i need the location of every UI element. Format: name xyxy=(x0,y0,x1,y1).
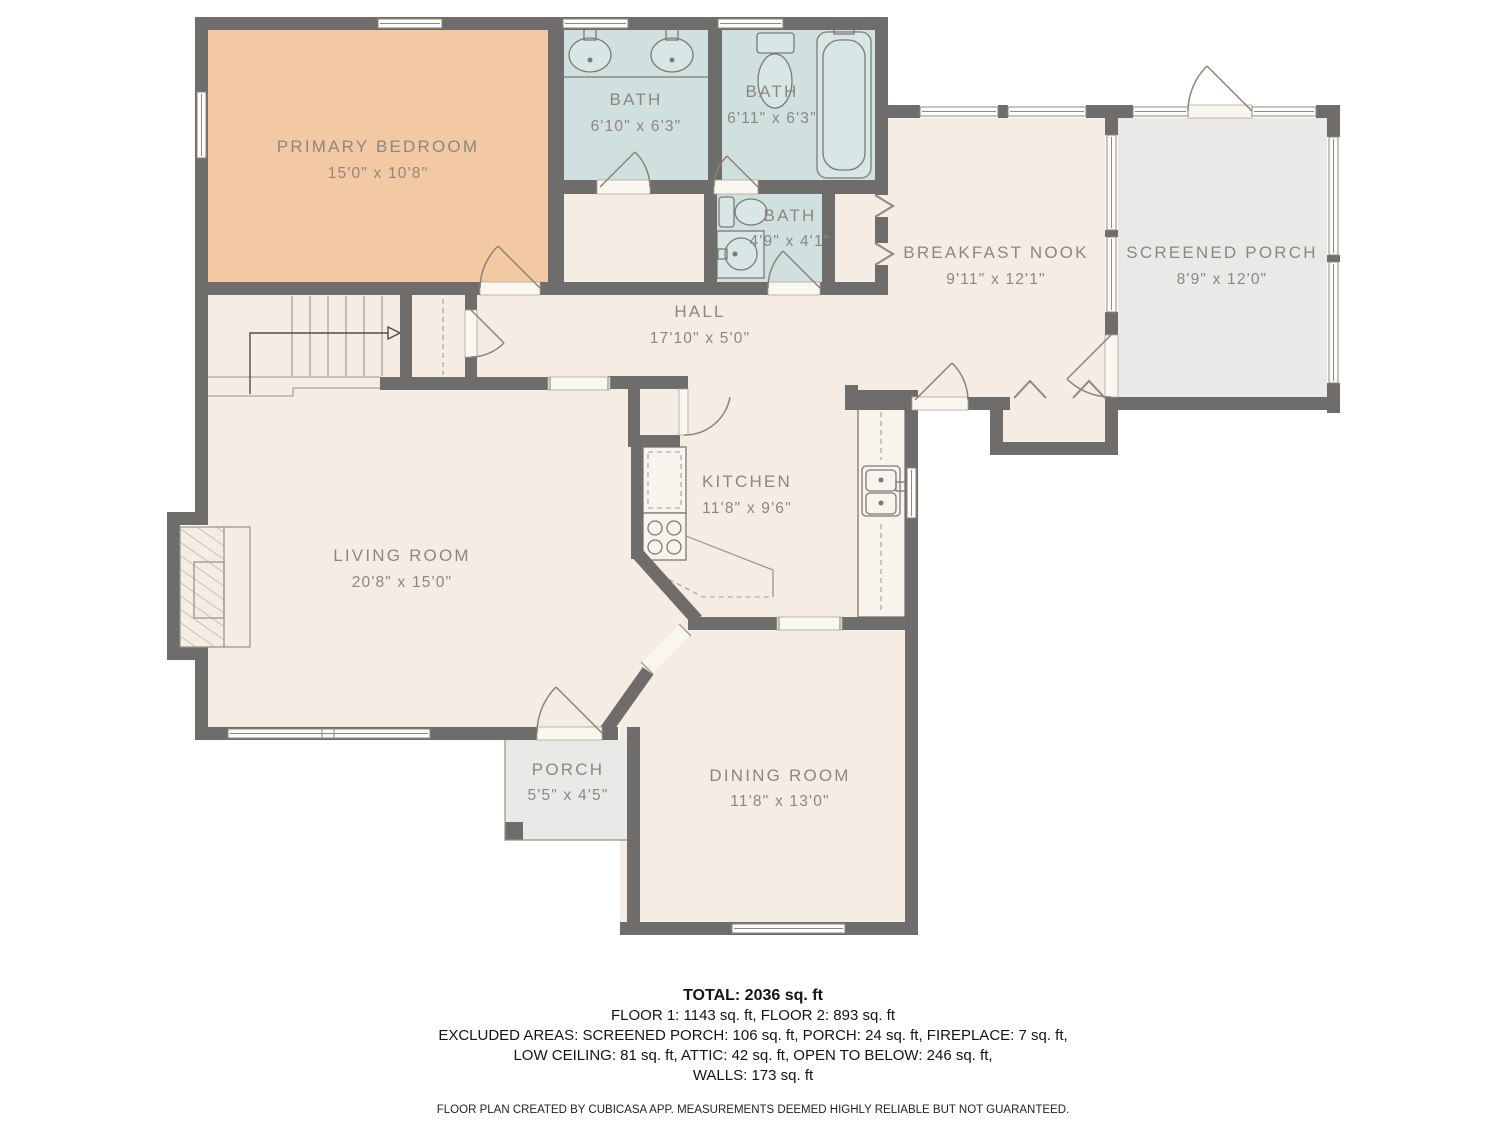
label-bath-2: BATH xyxy=(746,82,799,101)
room-alcove xyxy=(1003,397,1105,442)
window xyxy=(563,19,628,28)
dims-bath-3: 4'9" x 4'1" xyxy=(750,233,831,250)
label-bath-1: BATH xyxy=(610,90,663,109)
window xyxy=(1008,107,1086,116)
label-primary-bedroom: PRIMARY BEDROOM xyxy=(277,137,479,156)
window xyxy=(1107,237,1116,312)
dims-porch: 5'5" x 4'5" xyxy=(528,787,609,804)
summary-total: TOTAL: 2036 sq. ft xyxy=(683,987,824,1004)
summary-excluded-2: LOW CEILING: 81 sq. ft, ATTIC: 42 sq. ft… xyxy=(513,1047,992,1064)
window xyxy=(378,19,442,28)
window xyxy=(197,92,206,158)
summary-floors: FLOOR 1: 1143 sq. ft, FLOOR 2: 893 sq. f… xyxy=(611,1007,896,1024)
label-living-room: LIVING ROOM xyxy=(333,546,471,565)
window xyxy=(732,924,845,933)
cased-opening-hall-living xyxy=(548,377,610,390)
summary-excluded-1: EXCLUDED AREAS: SCREENED PORCH: 106 sq. … xyxy=(438,1027,1067,1044)
dims-living-room: 20'8" x 15'0" xyxy=(352,574,453,591)
room-primary-bedroom xyxy=(208,30,548,282)
kitchen-counter-left xyxy=(643,447,686,513)
toilet-icon xyxy=(719,197,767,227)
window xyxy=(718,19,783,28)
kitchen-counter-right xyxy=(858,405,908,617)
stove-icon xyxy=(643,513,686,560)
room-closet xyxy=(564,192,704,282)
dims-hall: 17'10" x 5'0" xyxy=(650,330,751,347)
window xyxy=(1107,135,1116,230)
summary-block: TOTAL: 2036 sq. ft FLOOR 1: 1143 sq. ft,… xyxy=(437,987,1069,1116)
dims-bath-1: 6'10" x 6'3" xyxy=(591,118,682,135)
window xyxy=(920,107,998,116)
label-screened-porch: SCREENED PORCH xyxy=(1126,243,1317,262)
dims-dining-room: 11'8" x 13'0" xyxy=(730,793,829,810)
dims-screened-porch: 8'9" x 12'0" xyxy=(1177,271,1268,288)
dims-breakfast-nook: 9'11" x 12'1" xyxy=(946,271,1045,288)
summary-disclaimer: FLOOR PLAN CREATED BY CUBICASA APP. MEAS… xyxy=(437,1104,1069,1116)
window xyxy=(1133,107,1188,116)
floor-plan-canvas: PRIMARY BEDROOM 15'0" x 10'8" BATH 6'10"… xyxy=(0,0,1500,1125)
dims-bath-2: 6'11" x 6'3" xyxy=(727,110,817,127)
cased-opening-kitchen-dining xyxy=(777,617,842,630)
floor-plan-page: PRIMARY BEDROOM 15'0" x 10'8" BATH 6'10"… xyxy=(0,0,1500,1125)
bathtub-icon xyxy=(817,24,871,178)
dims-primary-bedroom: 15'0" x 10'8" xyxy=(328,165,429,182)
label-bath-3: BATH xyxy=(764,206,817,225)
porch-post xyxy=(505,822,523,840)
door-screened-porch-exterior xyxy=(1188,66,1252,111)
window xyxy=(907,468,916,518)
summary-excluded-3: WALLS: 173 sq. ft xyxy=(693,1067,814,1084)
label-hall: HALL xyxy=(674,302,725,321)
fireplace-icon xyxy=(167,512,250,660)
label-porch: PORCH xyxy=(532,760,604,779)
window xyxy=(1252,107,1316,116)
label-breakfast-nook: BREAKFAST NOOK xyxy=(903,243,1088,262)
dims-kitchen: 11'8" x 9'6" xyxy=(702,500,792,517)
label-dining-room: DINING ROOM xyxy=(709,766,850,785)
window xyxy=(1329,137,1338,255)
window xyxy=(1329,262,1338,383)
label-kitchen: KITCHEN xyxy=(702,472,792,491)
window xyxy=(228,729,430,738)
